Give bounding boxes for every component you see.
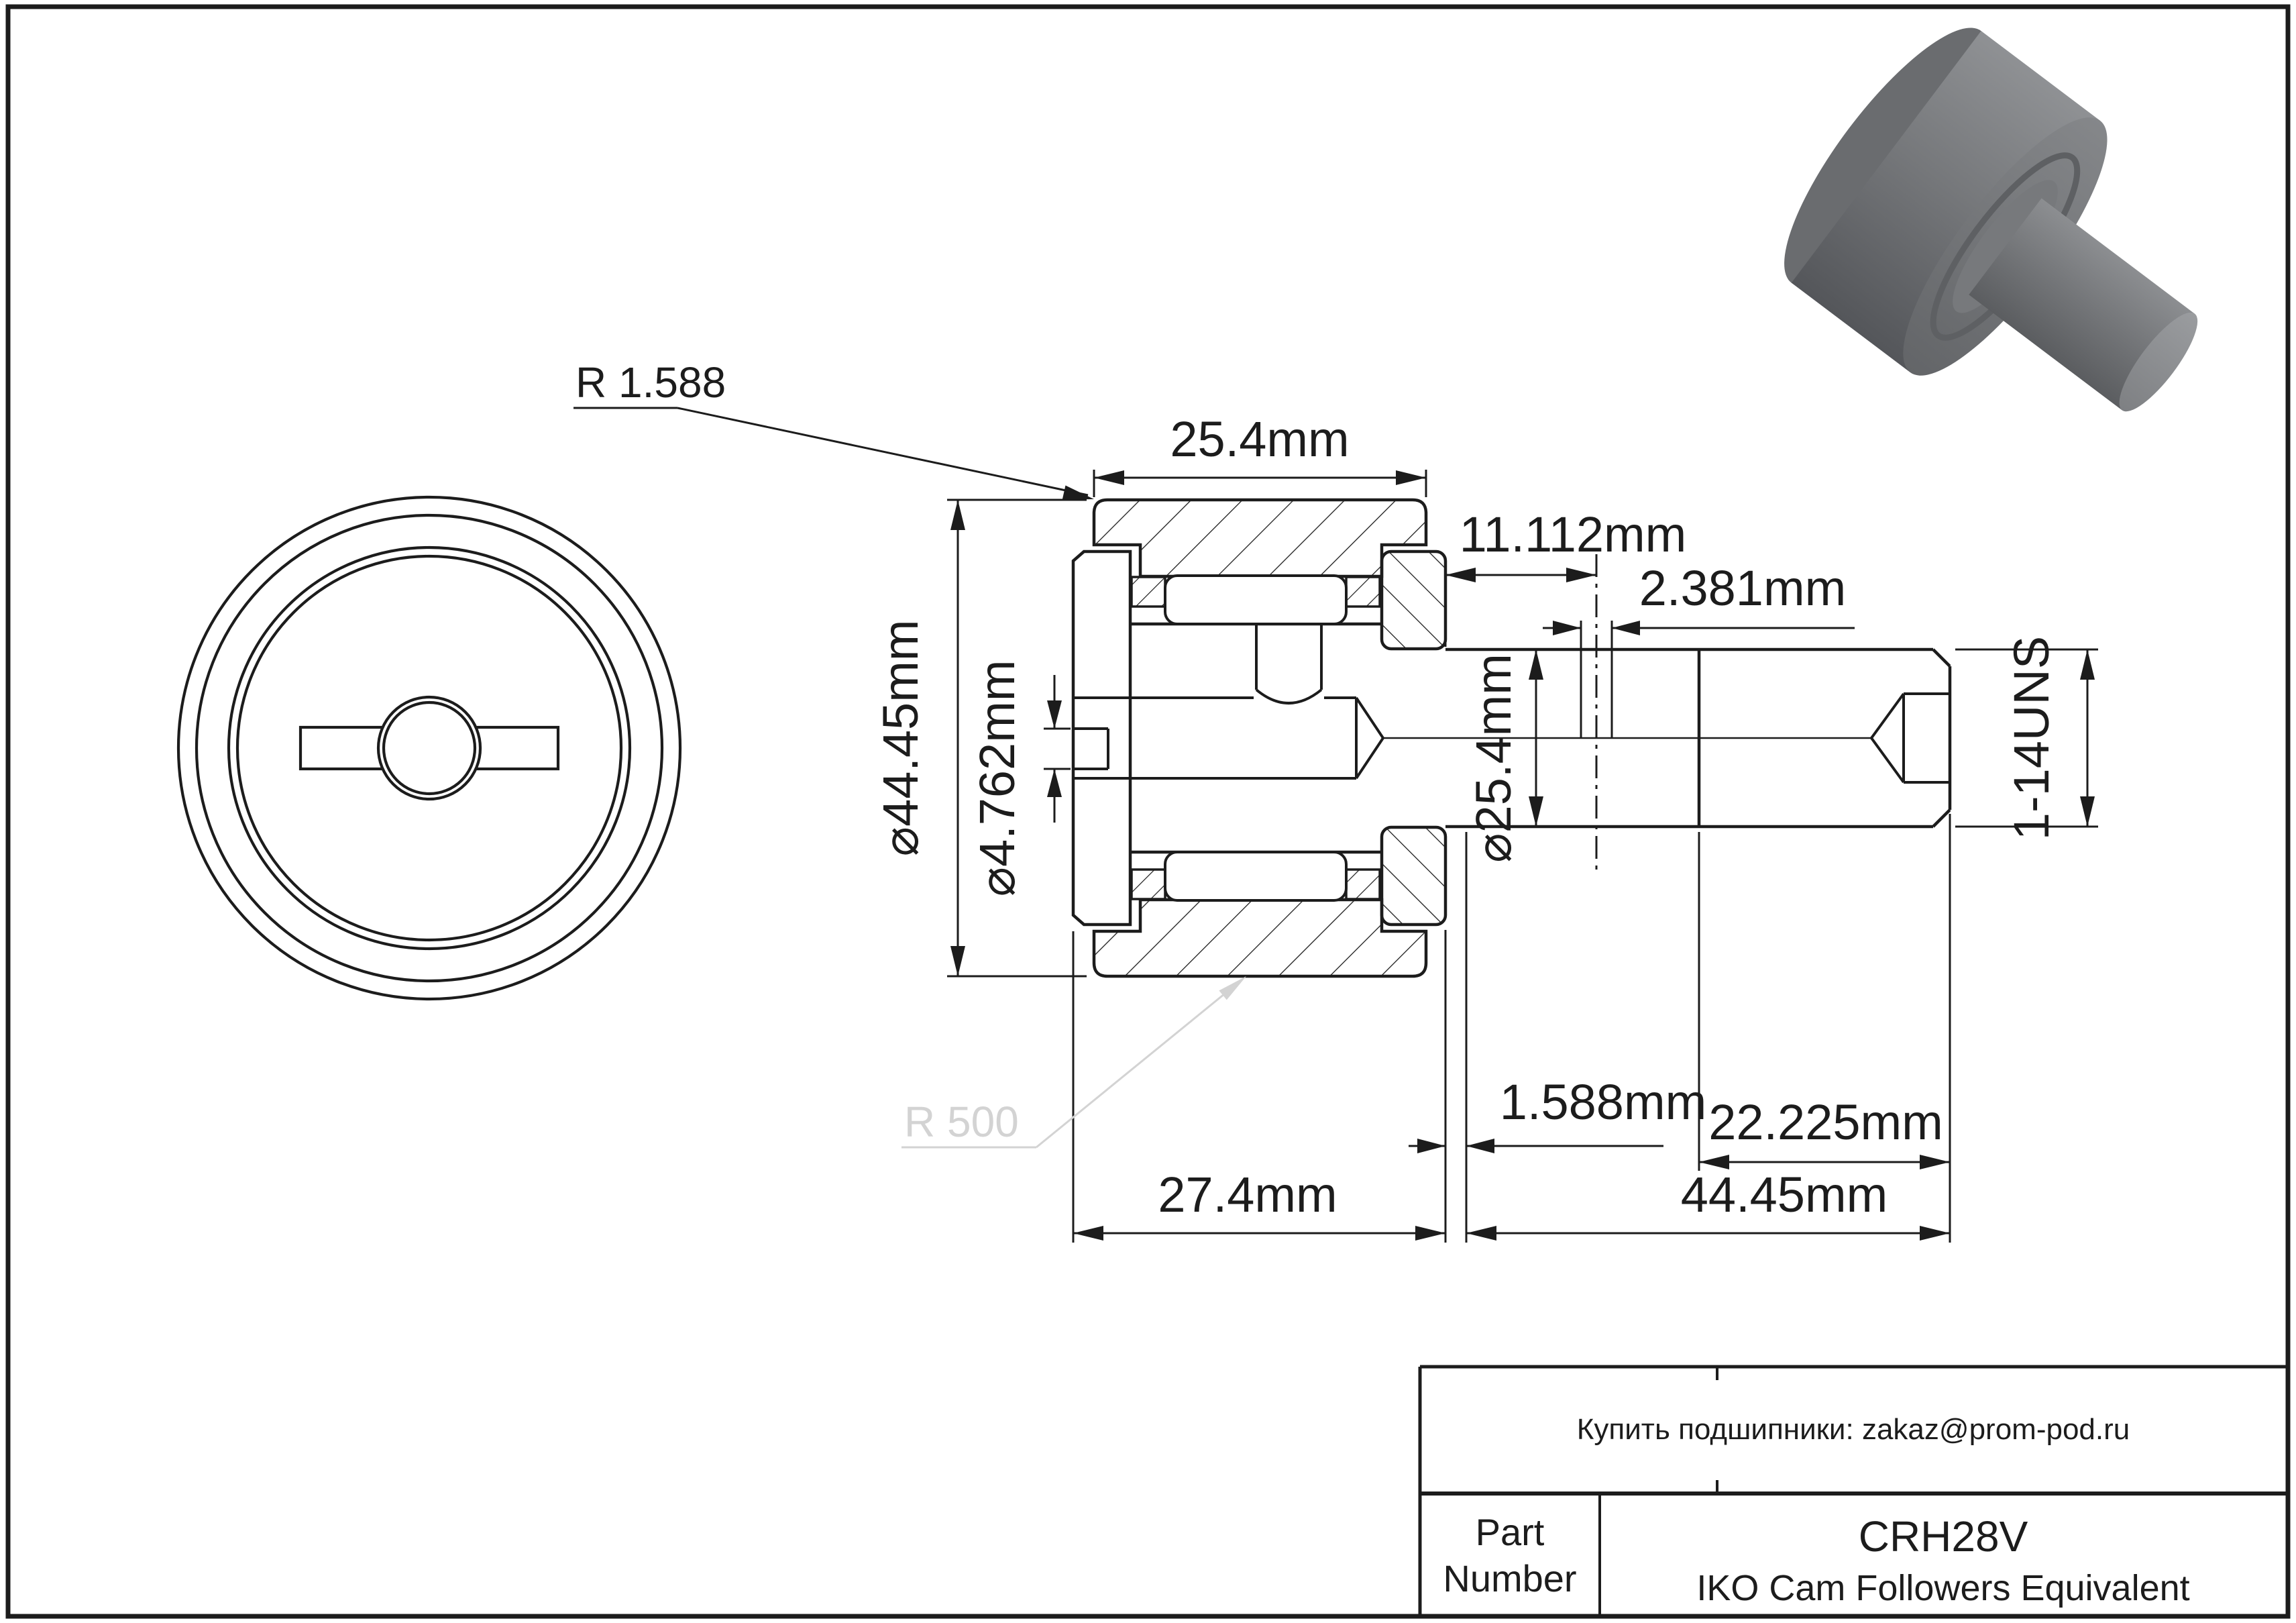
label-thread-length: 22.225mm: [1708, 1094, 1943, 1150]
part-number-value: CRH28V: [1859, 1512, 2028, 1561]
label-corner-radius: R 1.588: [576, 358, 726, 407]
cage-bottom-right: [1346, 870, 1380, 899]
render-3d: [1754, 3, 2268, 499]
end-plate-top: [1382, 552, 1445, 649]
outer-ring-bottom: [1094, 900, 1426, 976]
cage-top-right: [1346, 577, 1380, 607]
label-stud-diameter: ⌀25.4mm: [1466, 653, 1521, 863]
title-block-contact: Купить подшипники: zakaz@prom-pod.ru: [1577, 1413, 2130, 1446]
label-grease-hole-offset: 11.112mm: [1460, 507, 1687, 562]
end-plate-bottom: [1382, 827, 1445, 925]
stud-flange: [1073, 552, 1130, 925]
front-view: [178, 497, 680, 999]
label-slot-width: ⌀4.762mm: [969, 660, 1025, 896]
label-roller-width: 25.4mm: [1170, 411, 1349, 467]
drawing-sheet: R 1.588 25.4mm 11.112mm 2.381mm ⌀44.45mm…: [0, 0, 2296, 1623]
front-boss-outer: [378, 697, 480, 799]
label-grease-hole-diameter: 2.381mm: [1639, 560, 1846, 616]
label-head-width: 27.4mm: [1158, 1167, 1337, 1222]
label-roller-outer-diameter: ⌀44.45mm: [873, 619, 928, 856]
label-crown-radius: R 500: [904, 1098, 1019, 1146]
part-number-label-line2: Number: [1443, 1557, 1576, 1600]
label-flange-offset: 1.588mm: [1500, 1074, 1706, 1130]
roller-bottom: [1165, 852, 1346, 900]
dimension-labels: R 1.588 25.4mm 11.112mm 2.381mm ⌀44.45mm…: [576, 358, 2059, 1222]
outer-ring-top: [1094, 500, 1426, 576]
title-block: Купить подшипники: zakaz@prom-pod.ru Par…: [1420, 1367, 2288, 1616]
hex-socket: [1871, 694, 1950, 782]
label-thread-spec: 1-14UNS: [2004, 636, 2059, 840]
part-number-label-line1: Part: [1476, 1511, 1545, 1553]
grease-channel: [1256, 625, 1321, 703]
cage-top-left: [1132, 577, 1165, 607]
cage-bottom-left: [1132, 870, 1165, 899]
label-stud-length: 44.45mm: [1681, 1167, 1888, 1222]
part-description: IKO Cam Followers Equivalent: [1696, 1568, 2189, 1608]
technical-drawing: R 1.588 25.4mm 11.112mm 2.381mm ⌀44.45mm…: [0, 0, 2296, 1623]
roller-top: [1165, 576, 1346, 624]
